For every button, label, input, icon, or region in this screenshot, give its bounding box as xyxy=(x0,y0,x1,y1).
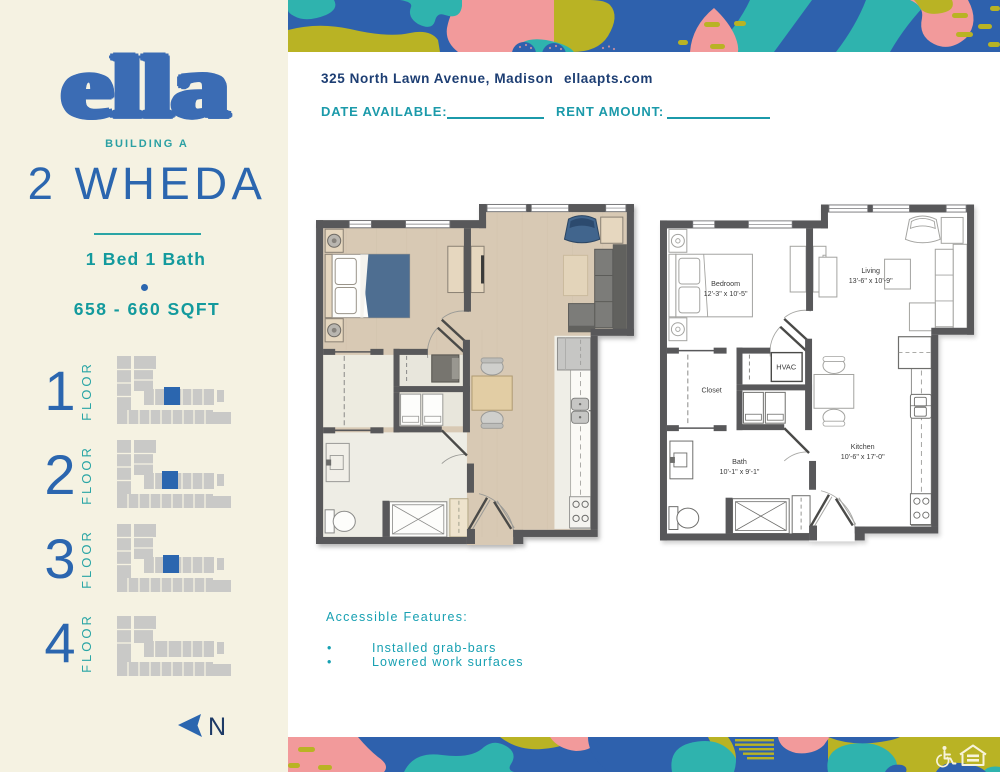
svg-text:N: N xyxy=(208,713,226,741)
svg-text:HVAC: HVAC xyxy=(776,363,797,372)
svg-text:Bath: Bath xyxy=(732,458,747,466)
svg-text:Kitchen: Kitchen xyxy=(851,443,875,451)
svg-text:10'-6" x 17'-0": 10'-6" x 17'-0" xyxy=(841,453,885,461)
svg-text:Bedroom: Bedroom xyxy=(711,280,740,288)
svg-text:12'-3" x 10'-5": 12'-3" x 10'-5" xyxy=(704,290,748,298)
svg-text:Closet: Closet xyxy=(702,386,722,394)
svg-text:10'-1" x 9'-1": 10'-1" x 9'-1" xyxy=(720,468,760,476)
svg-text:Living: Living xyxy=(861,267,880,275)
svg-text:13'-6" x 10'-9": 13'-6" x 10'-9" xyxy=(849,277,893,285)
